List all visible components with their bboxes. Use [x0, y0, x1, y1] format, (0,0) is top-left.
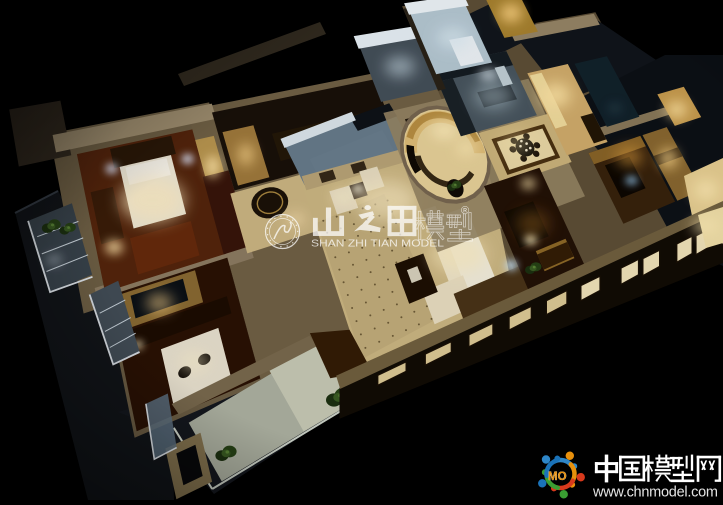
svg-text:www.chnmodel.com: www.chnmodel.com	[592, 485, 718, 501]
svg-text:MO: MO	[548, 471, 567, 483]
svg-text:®: ®	[461, 205, 469, 217]
svg-text:SHAN ZHI TIAN MODEL: SHAN ZHI TIAN MODEL	[311, 238, 444, 250]
